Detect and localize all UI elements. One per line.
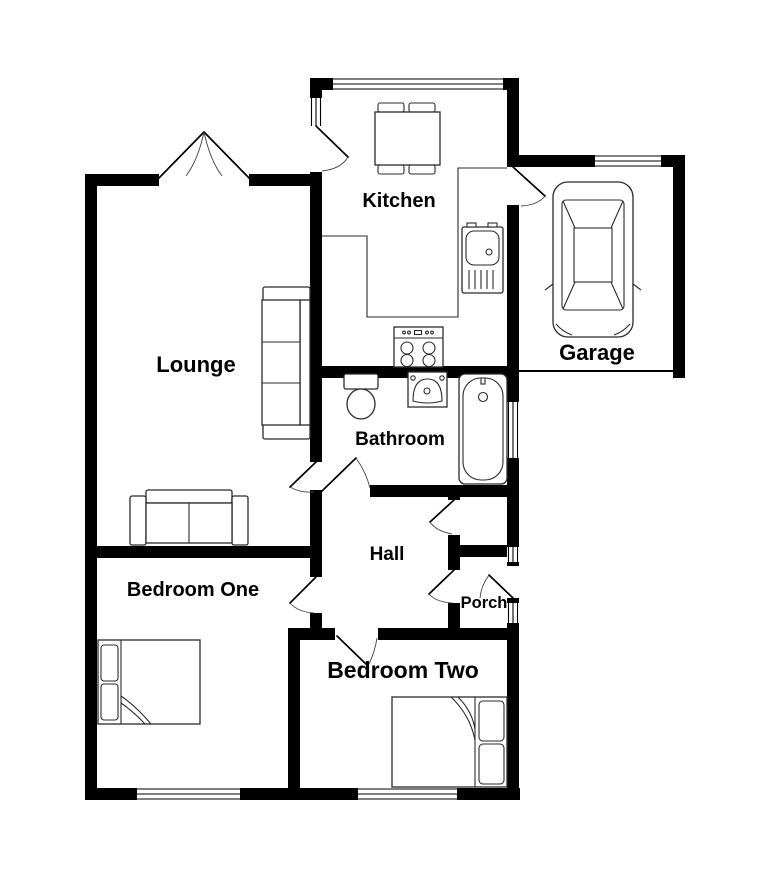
wash-basin-icon	[408, 372, 447, 407]
window-bedroom-one-bottom	[137, 788, 240, 800]
room-label-lounge: Lounge	[156, 352, 235, 377]
wall-garage-top-left	[519, 155, 595, 167]
wall-garage-right	[673, 167, 685, 378]
window-porch-right-upper	[507, 547, 519, 562]
window-porch-right-lower	[507, 603, 519, 623]
wall-lounge-top-right	[249, 174, 312, 186]
window-kitchen-top	[333, 78, 503, 90]
wall-right-mid	[507, 458, 519, 547]
wall-bathroom-bottom	[370, 485, 519, 497]
bathtub-icon	[459, 374, 507, 484]
wall-lounge-kitchen-divider	[310, 172, 322, 462]
wall-lounge-top-left	[85, 174, 159, 186]
wall-hall-left-mid	[310, 490, 322, 577]
room-label-bathroom: Bathroom	[355, 429, 445, 450]
dining-table-icon	[375, 103, 440, 174]
wall-exterior-left	[85, 174, 97, 800]
wall-right-kitchen-low	[507, 205, 519, 366]
wall-bedroom-divider	[288, 628, 300, 788]
double-bed-icon	[392, 697, 507, 787]
room-label-bedroom-one: Bedroom One	[127, 579, 259, 601]
wall-right-door-jamb-top	[507, 562, 519, 566]
room-label-garage: Garage	[559, 340, 635, 365]
toilet-icon	[344, 374, 378, 419]
wall-hall-bottom-right	[378, 628, 519, 640]
car-icon	[545, 182, 641, 337]
window-bathroom-right	[507, 402, 519, 458]
window-bedroom-two-bottom	[358, 788, 457, 800]
wall-kitchen-top-left	[310, 78, 333, 90]
wall-garage-top-right	[661, 155, 685, 167]
floor-plan: Kitchen Garage Lounge Bathroom Hall Porc…	[0, 0, 768, 885]
wall-cupboard-left-top	[448, 485, 460, 500]
wall-lounge-bedroom1-divider	[85, 546, 312, 558]
kitchen-sink-icon	[462, 223, 503, 293]
window-kitchen-left	[310, 98, 322, 126]
wall-porch-left-top	[448, 557, 460, 570]
room-label-bedroom-two: Bedroom Two	[327, 657, 479, 683]
wall-right-bottom	[507, 623, 519, 800]
sofa-three-seat-icon	[262, 287, 310, 439]
wall-right-bathroom-top	[507, 378, 519, 402]
single-bed-icon	[98, 640, 200, 724]
room-label-hall: Hall	[370, 544, 405, 565]
floor-plan-canvas: Kitchen Garage Lounge Bathroom Hall Porc…	[0, 0, 768, 885]
room-label-porch: Porch	[461, 594, 508, 612]
sofa-two-seat-icon	[130, 490, 248, 545]
room-label-kitchen: Kitchen	[362, 190, 435, 212]
wall-right-kitchen-top	[507, 78, 519, 167]
wall-porch-top	[448, 545, 507, 557]
window-garage-top	[595, 155, 661, 167]
hob-icon	[394, 327, 443, 367]
